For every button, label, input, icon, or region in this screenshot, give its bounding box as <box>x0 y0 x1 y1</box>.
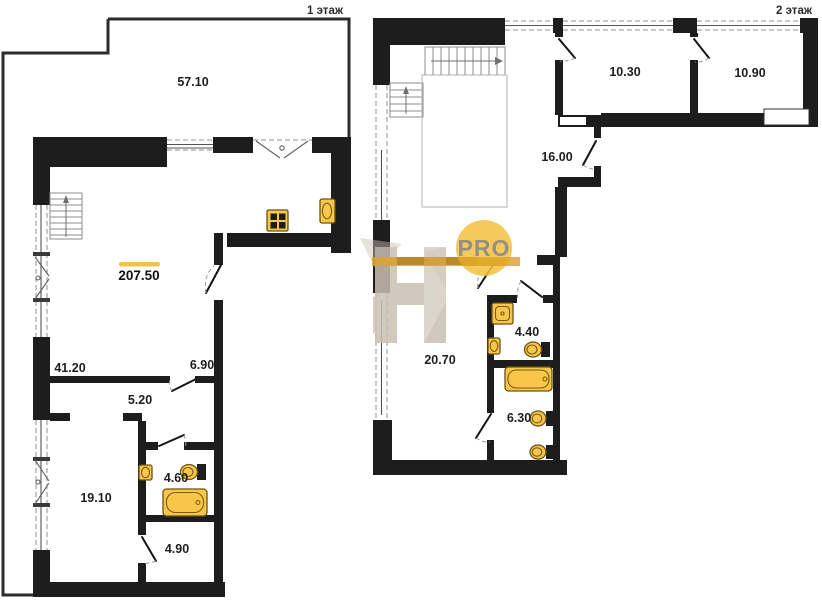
window-icon <box>376 85 387 220</box>
room-label-hallway: 4.90 <box>165 542 189 556</box>
floor1-title: 1 этаж <box>307 5 344 17</box>
room-label-bathroom-b: 6.30 <box>507 411 531 425</box>
wall-niche <box>560 117 586 125</box>
room-label-entry: 6.90 <box>190 358 214 372</box>
sink-icon <box>139 465 152 480</box>
stair-opening-outline <box>422 75 507 207</box>
door-icon <box>169 379 196 391</box>
bathtub-icon <box>505 367 552 391</box>
room-label-bathroom: 4.60 <box>164 471 188 485</box>
door-icon <box>159 435 186 449</box>
window-icon <box>563 21 673 30</box>
room-label-bathroom-a: 4.40 <box>515 325 539 339</box>
room-label-living: 41.20 <box>54 361 85 375</box>
balcony-door-icon <box>253 140 312 158</box>
window-icon <box>33 205 50 337</box>
room-label-bedroom: 19.10 <box>80 491 111 505</box>
watermark-pro-text: PRO <box>458 235 511 261</box>
staircase-icon <box>390 47 507 207</box>
room-label-bedroom2: 20.70 <box>424 353 455 367</box>
entrance-door-icon <box>205 265 221 293</box>
door-icon <box>559 39 575 61</box>
shower-tray-icon <box>492 303 513 324</box>
watermark-h-letter <box>360 238 446 343</box>
window-icon <box>505 21 553 30</box>
room-label-room-a: 10.30 <box>609 65 640 79</box>
total-area-accent-bar <box>119 262 160 267</box>
sink-icon <box>488 338 500 354</box>
bidet-icon <box>530 445 553 459</box>
window-icon <box>697 21 800 30</box>
room-label-terrace: 57.10 <box>177 75 208 89</box>
kitchen-sink-icon <box>320 199 335 223</box>
closet-niche <box>764 109 809 125</box>
room-label-corridor: 5.20 <box>128 393 152 407</box>
toilet-icon <box>530 411 553 426</box>
stove-icon <box>267 210 288 231</box>
window-icon <box>167 140 213 150</box>
door-icon <box>694 39 709 62</box>
room-label-corridor2: 16.00 <box>541 150 572 164</box>
floorplan-canvas: 57.10 41.20 6.90 5.20 19.10 4.60 4.90 20… <box>0 0 822 600</box>
floor2-walls <box>373 18 818 475</box>
toilet-icon <box>525 342 551 357</box>
window-icon <box>33 420 50 550</box>
door-icon <box>142 537 156 563</box>
floorplan-image: 57.10 41.20 6.90 5.20 19.10 4.60 4.90 20… <box>0 0 822 600</box>
door-icon <box>517 281 542 298</box>
floor2-title: 2 этаж <box>776 5 813 17</box>
floor2-plan: 10.30 10.90 16.00 20.70 4.40 6.30 2 этаж <box>373 5 818 475</box>
floor1-plan: 57.10 41.20 6.90 5.20 19.10 4.60 4.90 20… <box>3 5 351 597</box>
door-icon <box>476 414 491 442</box>
total-area-label: 207.50 <box>118 268 159 283</box>
room-label-room-b: 10.90 <box>734 66 765 80</box>
bathtub-icon <box>163 489 207 516</box>
door-icon <box>583 141 596 169</box>
staircase-icon <box>50 193 82 239</box>
